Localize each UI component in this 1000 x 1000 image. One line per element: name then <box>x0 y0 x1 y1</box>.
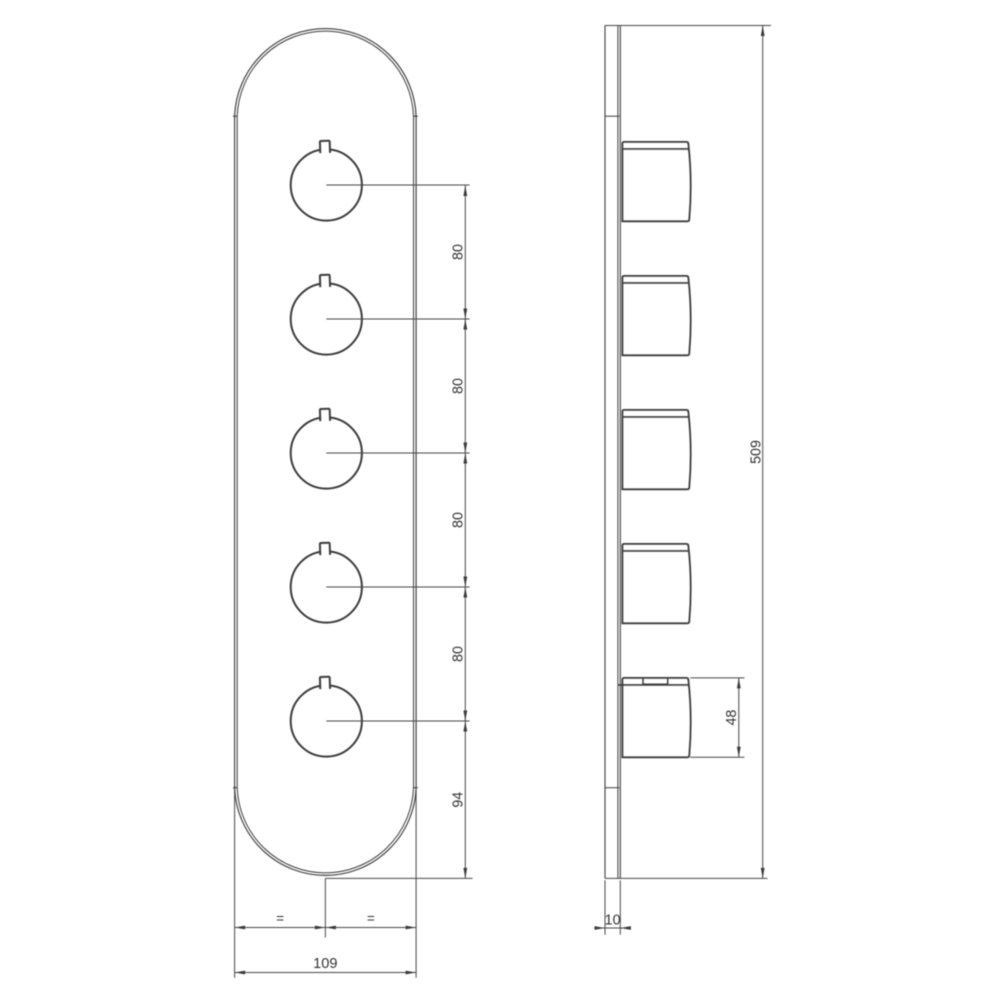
svg-text:109: 109 <box>313 956 337 972</box>
svg-text:=: = <box>367 911 375 926</box>
svg-text:=: = <box>276 911 284 926</box>
svg-text:80: 80 <box>451 646 467 662</box>
svg-text:48: 48 <box>724 710 740 726</box>
svg-text:80: 80 <box>451 378 467 394</box>
svg-text:80: 80 <box>451 512 467 528</box>
svg-text:80: 80 <box>451 244 467 260</box>
svg-text:94: 94 <box>451 792 467 808</box>
svg-text:509: 509 <box>748 440 764 464</box>
svg-text:10: 10 <box>605 913 621 929</box>
